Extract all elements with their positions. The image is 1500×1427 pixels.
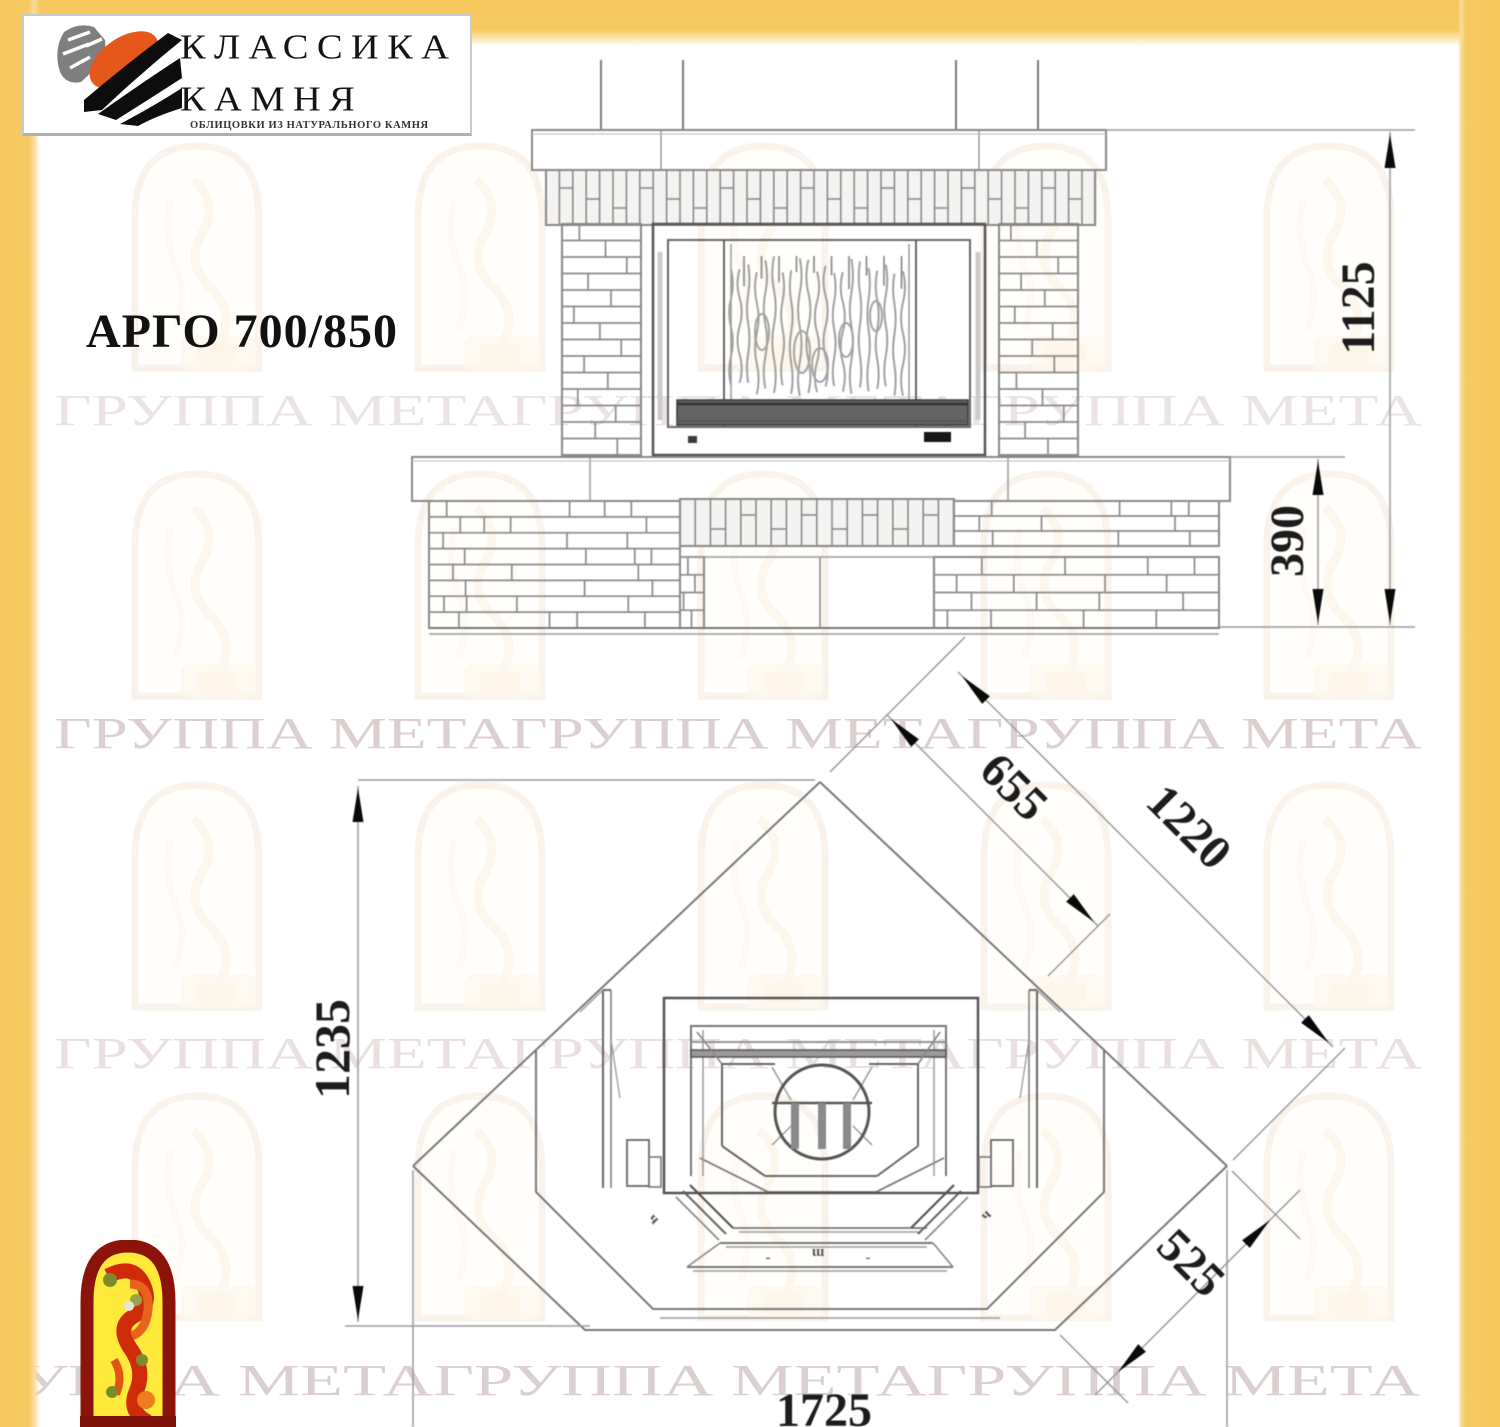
svg-text:ч: ч: [978, 1206, 996, 1224]
svg-text:1235: 1235: [304, 999, 360, 1099]
svg-text:-: -: [765, 1249, 770, 1266]
svg-text:ɯ: ɯ: [812, 1244, 825, 1260]
svg-text:390: 390: [1261, 505, 1314, 577]
svg-text:1725: 1725: [776, 1384, 872, 1427]
svg-text:525: 525: [1147, 1219, 1235, 1307]
svg-text:ч: ч: [645, 1211, 663, 1229]
svg-text:655: 655: [970, 743, 1058, 831]
svg-text:1220: 1220: [1136, 774, 1241, 879]
svg-text:-: -: [865, 1249, 870, 1266]
svg-text:1125: 1125: [1332, 261, 1385, 354]
